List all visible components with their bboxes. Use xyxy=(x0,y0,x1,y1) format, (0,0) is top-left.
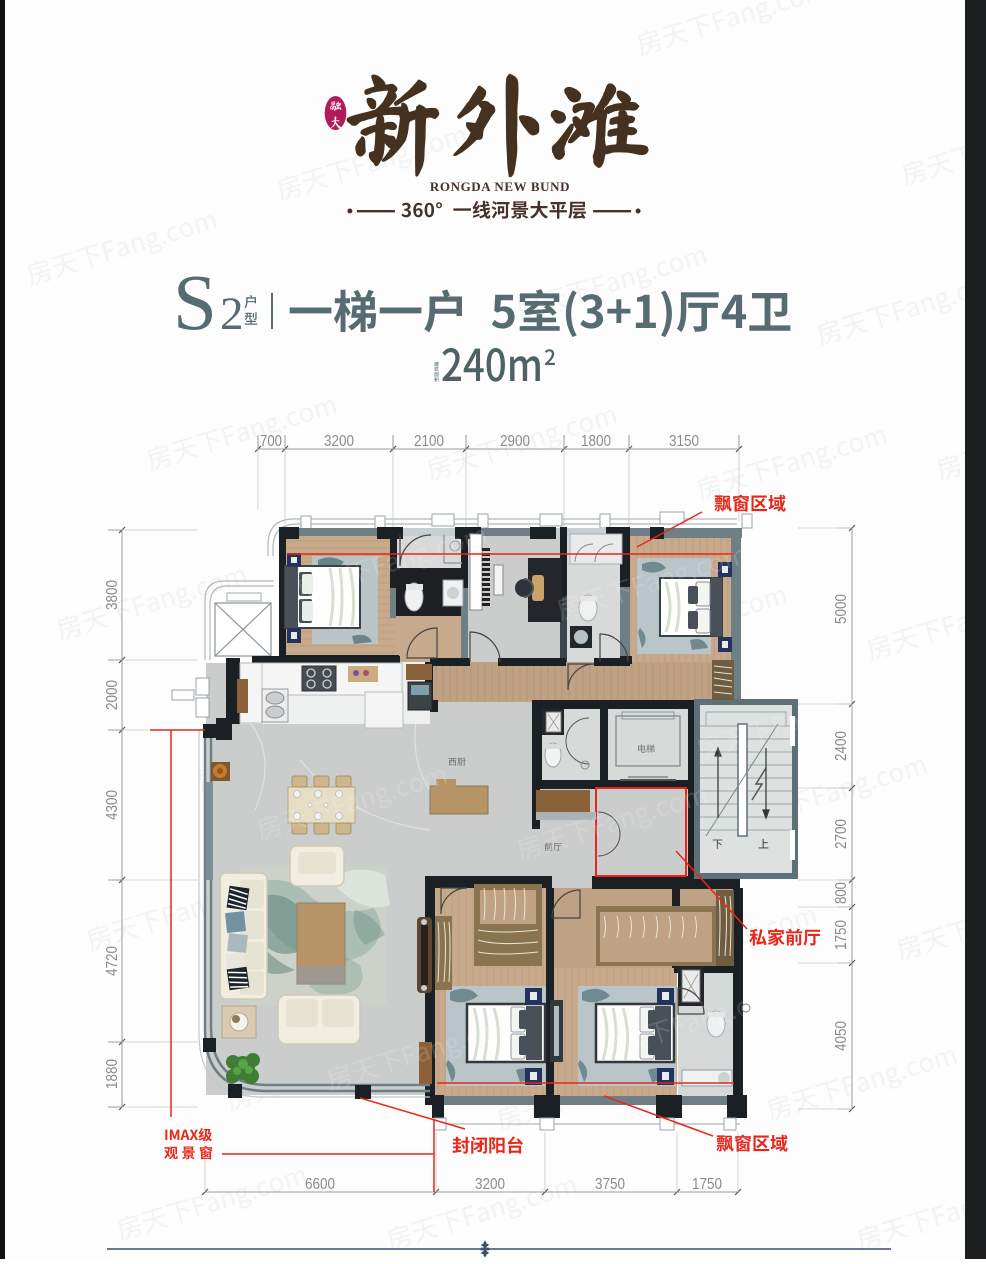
svg-text:700: 700 xyxy=(260,433,282,450)
svg-text:2000: 2000 xyxy=(104,680,121,710)
svg-text:4300: 4300 xyxy=(104,790,121,820)
svg-text:2400: 2400 xyxy=(833,731,850,761)
svg-text:2100: 2100 xyxy=(414,433,444,450)
svg-text:2: 2 xyxy=(220,288,244,340)
svg-text:4720: 4720 xyxy=(104,946,121,976)
svg-text:3750: 3750 xyxy=(595,1176,625,1193)
svg-text:6600: 6600 xyxy=(305,1176,335,1193)
svg-text:3200: 3200 xyxy=(475,1176,505,1193)
svg-text:S: S xyxy=(173,260,217,347)
svg-text:1880: 1880 xyxy=(104,1059,121,1089)
svg-text:RONGDA NEW BUND: RONGDA NEW BUND xyxy=(430,179,570,194)
svg-text:2900: 2900 xyxy=(500,433,530,450)
svg-text:5000: 5000 xyxy=(833,594,850,624)
svg-text:3800: 3800 xyxy=(104,580,121,610)
svg-text:1750: 1750 xyxy=(833,920,850,950)
svg-text:2700: 2700 xyxy=(833,819,850,849)
svg-text:1800: 1800 xyxy=(581,433,611,450)
svg-text:3200: 3200 xyxy=(324,433,354,450)
svg-text:1750: 1750 xyxy=(692,1176,722,1193)
svg-text:4050: 4050 xyxy=(833,1021,850,1051)
svg-text:800: 800 xyxy=(833,882,850,904)
svg-text:3150: 3150 xyxy=(669,433,699,450)
